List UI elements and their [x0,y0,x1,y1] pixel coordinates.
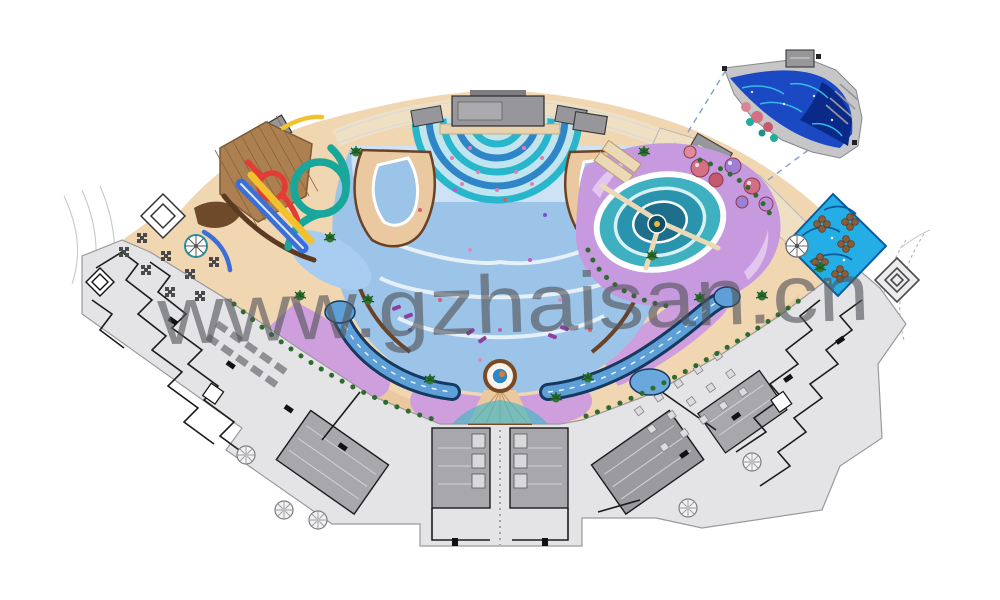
umbrella-icon [185,235,207,257]
patio-table-icon [309,511,327,529]
patio-table-icon [679,499,697,517]
patio-table-icon [743,453,761,471]
plan-drawing: www.gzhaisan.cn [0,0,1000,600]
waterpark-master-plan: www.gzhaisan.cn [0,0,1000,600]
koi-icon [499,371,505,377]
spa-island-left [355,150,435,246]
patio-table-icon [237,446,255,464]
patio-table-icon [275,501,293,519]
